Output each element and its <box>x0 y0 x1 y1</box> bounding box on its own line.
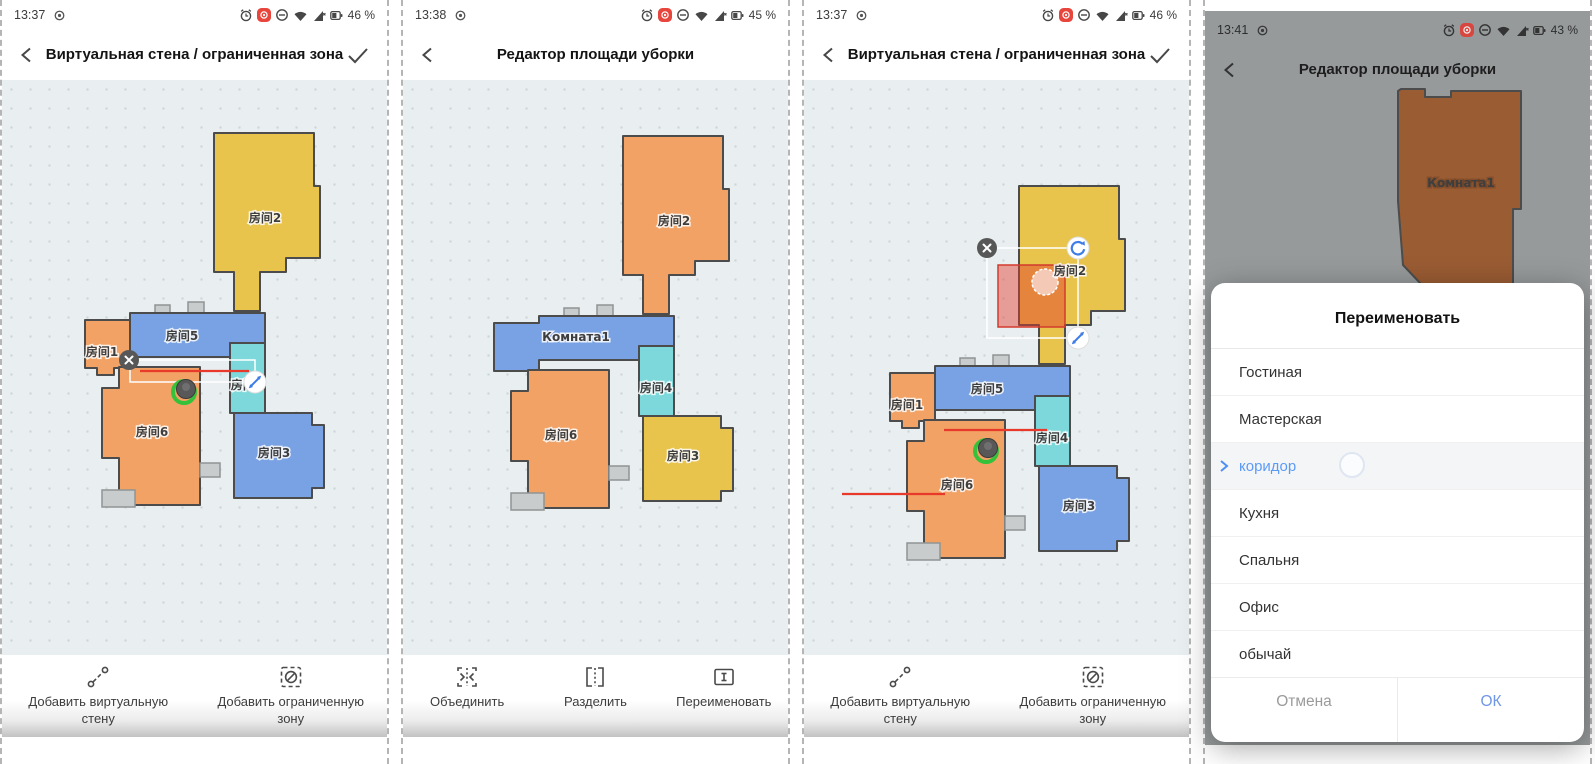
add-virtual-wall-button[interactable]: Добавить виртуальную стену <box>804 655 997 737</box>
add-no-go-zone-label: Добавить ограниченную зону <box>205 694 377 727</box>
room-6-label: 房间6 <box>136 424 168 439</box>
status-bar: 13:38 45 % <box>403 0 788 30</box>
merge-rooms-button[interactable]: Объединить <box>403 655 531 737</box>
add-virtual-wall-button[interactable]: Добавить виртуальную стену <box>2 655 195 737</box>
map-area[interactable]: 房间1 房间2 房间5 房间4 房间3 房间6 <box>2 80 387 655</box>
status-bar: 13:37 46 % <box>2 0 387 30</box>
title-bar: Редактор площади уборки <box>403 30 788 80</box>
screenshot-panel-2: 13:38 45 % Редактор площади уборки <box>401 0 790 764</box>
dnd-icon <box>275 8 289 22</box>
bottom-action-bar: Добавить виртуальную стену Добавить огра… <box>804 655 1189 737</box>
clock: 13:37 <box>816 8 847 22</box>
alarm-icon <box>640 8 654 22</box>
dialog-title: Переименовать <box>1211 283 1584 348</box>
phone-screen-4: 13:41 43 % Редактор площади уборки Комна… <box>1205 11 1590 745</box>
screenshot-panel-4: 13:41 43 % Редактор площади уборки Комна… <box>1203 0 1592 764</box>
add-no-go-zone-button[interactable]: Добавить ограниченную зону <box>195 655 388 737</box>
alarm-icon <box>239 8 253 22</box>
screen-record-icon <box>658 8 672 22</box>
split-icon <box>582 664 608 690</box>
carpet-block <box>102 490 135 507</box>
location-dot-icon <box>454 9 467 22</box>
back-icon[interactable] <box>18 46 36 64</box>
merge-icon <box>454 664 480 690</box>
cancel-button[interactable]: Отмена <box>1211 678 1397 742</box>
location-dot-icon <box>1256 24 1269 37</box>
room-3-label: 房间3 <box>667 448 699 463</box>
selected-option-label: коридор <box>1239 458 1296 475</box>
location-dot-icon <box>855 9 868 22</box>
status-bar: 13:41 43 % <box>1205 15 1590 45</box>
phone-screen-3: 13:37 46 % Виртуальная стена / ограничен… <box>804 0 1189 737</box>
bottom-action-bar: Объединить Разделить Переименовать <box>403 655 788 737</box>
battery-percent: 46 % <box>1150 8 1177 22</box>
title-bar: Виртуальная стена / ограниченная зона <box>2 30 387 80</box>
back-icon[interactable] <box>820 46 838 64</box>
battery-icon <box>1533 24 1546 37</box>
location-dot-icon <box>53 9 66 22</box>
back-icon[interactable] <box>419 46 437 64</box>
room-2-label: 房间2 <box>1054 263 1086 278</box>
room-merged-label: Комната1 <box>1427 176 1495 190</box>
dimmed-map-area: Комната1 <box>1205 81 1590 286</box>
bottom-action-bar: Добавить виртуальную стену Добавить огра… <box>2 655 387 737</box>
dnd-icon <box>1077 8 1091 22</box>
clock: 13:38 <box>415 8 446 22</box>
resize-zone-handle[interactable] <box>1067 327 1089 349</box>
battery-percent: 43 % <box>1551 23 1578 37</box>
add-no-go-zone-button[interactable]: Добавить ограниченную зону <box>997 655 1190 737</box>
loading-spinner <box>1339 452 1365 478</box>
merge-label: Объединить <box>430 694 504 711</box>
room-merged-label: Комната1 <box>542 330 610 344</box>
page-title: Виртуальная стена / ограниченная зона <box>42 30 347 80</box>
delete-wall-button[interactable] <box>119 350 139 370</box>
page-title: Редактор площади уборки <box>443 30 748 80</box>
room-6-label: 房间6 <box>941 477 973 492</box>
clock: 13:37 <box>14 8 45 22</box>
confirm-check-icon[interactable] <box>347 47 369 64</box>
room-3-label: 房间3 <box>1063 498 1095 513</box>
carpet-block <box>609 466 629 480</box>
delete-zone-button[interactable] <box>977 238 997 258</box>
add-no-go-zone-label: Добавить ограниченную зону <box>1007 694 1179 727</box>
wifi-icon <box>694 9 709 22</box>
no-go-zone-icon <box>1080 664 1106 690</box>
screen-record-icon <box>1460 23 1474 37</box>
alarm-icon <box>1041 8 1055 22</box>
room-2-label: 房间2 <box>658 213 690 228</box>
room-1-label: 房间1 <box>891 397 923 412</box>
battery-icon <box>1132 9 1145 22</box>
clock: 13:41 <box>1217 23 1248 37</box>
carpet-block <box>200 463 220 477</box>
screen-record-icon <box>257 8 271 22</box>
signal-icon <box>1114 9 1128 22</box>
split-room-button[interactable]: Разделить <box>531 655 659 737</box>
room-5-label: 房间5 <box>971 381 1003 396</box>
rename-option-masterskaya[interactable]: Мастерская <box>1211 395 1584 442</box>
room-4-label: 房间4 <box>1036 430 1068 445</box>
rename-option-koridor-selected[interactable]: коридор <box>1211 442 1584 489</box>
wifi-icon <box>293 9 308 22</box>
battery-percent: 46 % <box>348 8 375 22</box>
battery-icon <box>731 9 744 22</box>
rotate-zone-handle[interactable] <box>1067 237 1089 259</box>
wifi-icon <box>1496 24 1511 37</box>
room-4-label: 房间4 <box>640 380 672 395</box>
rename-option-kukhnya[interactable]: Кухня <box>1211 489 1584 536</box>
battery-percent: 45 % <box>749 8 776 22</box>
door-block <box>993 355 1009 366</box>
screenshot-panel-1: 13:37 46 % Виртуальная стена / ограничен… <box>0 0 389 764</box>
carpet-block <box>1005 516 1025 530</box>
dialog-footer: Отмена ОК <box>1211 677 1584 742</box>
rename-dialog: Переименовать Гостиная Мастерская коридо… <box>1211 283 1584 742</box>
rename-option-ofis[interactable]: Офис <box>1211 583 1584 630</box>
resize-wall-handle[interactable] <box>244 371 266 393</box>
selected-chevron-icon <box>1219 459 1229 473</box>
wifi-icon <box>1095 9 1110 22</box>
ok-button[interactable]: ОК <box>1397 678 1584 742</box>
virtual-wall-icon <box>85 664 111 690</box>
rename-icon <box>711 664 737 690</box>
no-go-zone-icon <box>278 664 304 690</box>
room-2-label: 房间2 <box>249 210 281 225</box>
phone-screen-2: 13:38 45 % Редактор площади уборки <box>403 0 788 737</box>
room-3-label: 房间3 <box>258 445 290 460</box>
title-bar: Виртуальная стена / ограниченная зона <box>804 30 1189 80</box>
rename-option-obychay[interactable]: обычай <box>1211 630 1584 677</box>
add-virtual-wall-label: Добавить виртуальную стену <box>12 694 184 727</box>
room-1-label: 房间1 <box>86 344 118 359</box>
page-title: Виртуальная стена / ограниченная зона <box>844 30 1149 80</box>
room-6-label: 房间6 <box>545 427 577 442</box>
door-block <box>597 305 613 316</box>
virtual-wall-icon <box>887 664 913 690</box>
status-bar: 13:37 46 % <box>804 0 1189 30</box>
carpet-block <box>907 543 940 560</box>
back-icon[interactable] <box>1221 61 1239 79</box>
split-label: Разделить <box>564 694 627 711</box>
battery-icon <box>330 9 343 22</box>
dnd-icon <box>676 8 690 22</box>
rename-room-button[interactable]: Переименовать <box>660 655 788 737</box>
screen-record-icon <box>1059 8 1073 22</box>
add-virtual-wall-label: Добавить виртуальную стену <box>814 694 986 727</box>
rename-option-spalnya[interactable]: Спальня <box>1211 536 1584 583</box>
confirm-check-icon[interactable] <box>1149 47 1171 64</box>
rename-option-gostinaya[interactable]: Гостиная <box>1211 348 1584 395</box>
rename-label: Переименовать <box>676 694 771 711</box>
dnd-icon <box>1478 23 1492 37</box>
room-5-label: 房间5 <box>166 328 198 343</box>
alarm-icon <box>1442 23 1456 37</box>
screenshot-panel-3: 13:37 46 % Виртуальная стена / ограничен… <box>802 0 1191 764</box>
map-area[interactable]: 房间2 Комната1 房间4 房间3 房间6 Выберите комнат… <box>403 80 788 655</box>
signal-icon <box>312 9 326 22</box>
phone-screen-1: 13:37 46 % Виртуальная стена / ограничен… <box>2 0 387 737</box>
signal-icon <box>713 9 727 22</box>
door-block <box>188 302 204 313</box>
map-area[interactable]: 房间2 房间1 房间5 房间4 房间3 房间6 <box>804 80 1189 655</box>
signal-icon <box>1515 24 1529 37</box>
carpet-block <box>511 493 544 510</box>
